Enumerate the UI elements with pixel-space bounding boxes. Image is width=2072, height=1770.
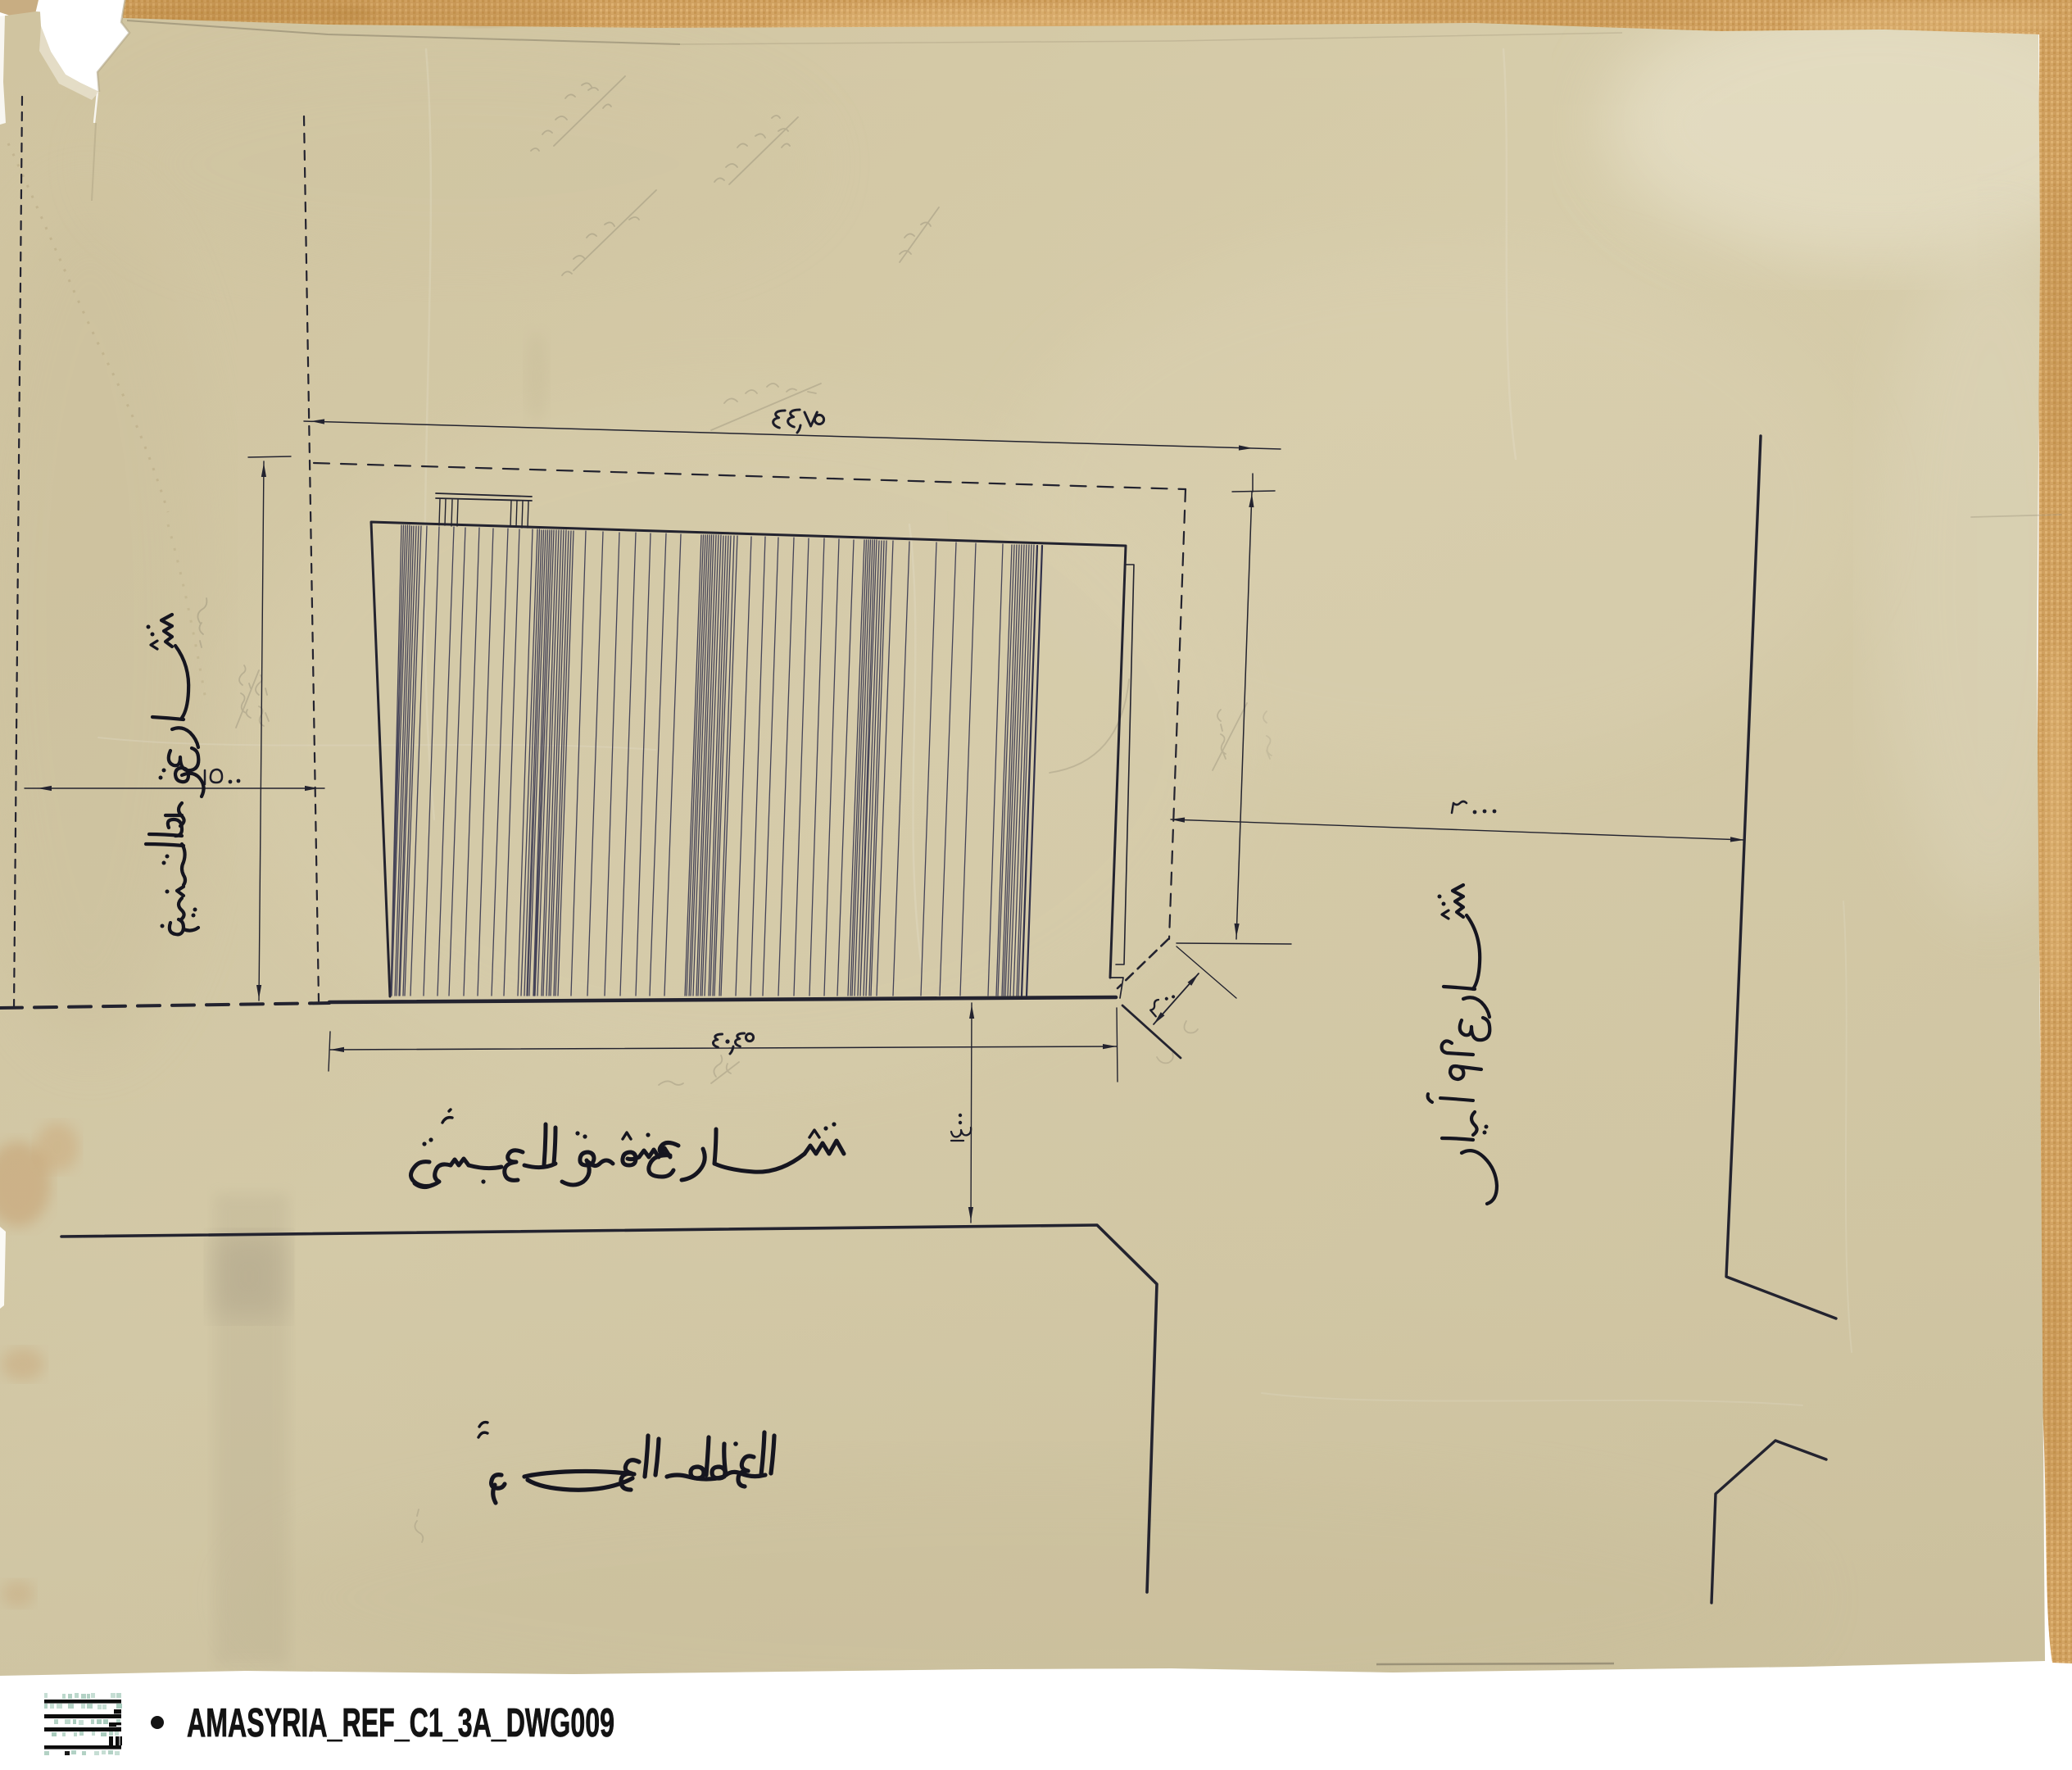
svg-text:AMASYRIA_REF_C1_3A_DWG009: AMASYRIA_REF_C1_3A_DWG009 — [187, 1701, 614, 1745]
